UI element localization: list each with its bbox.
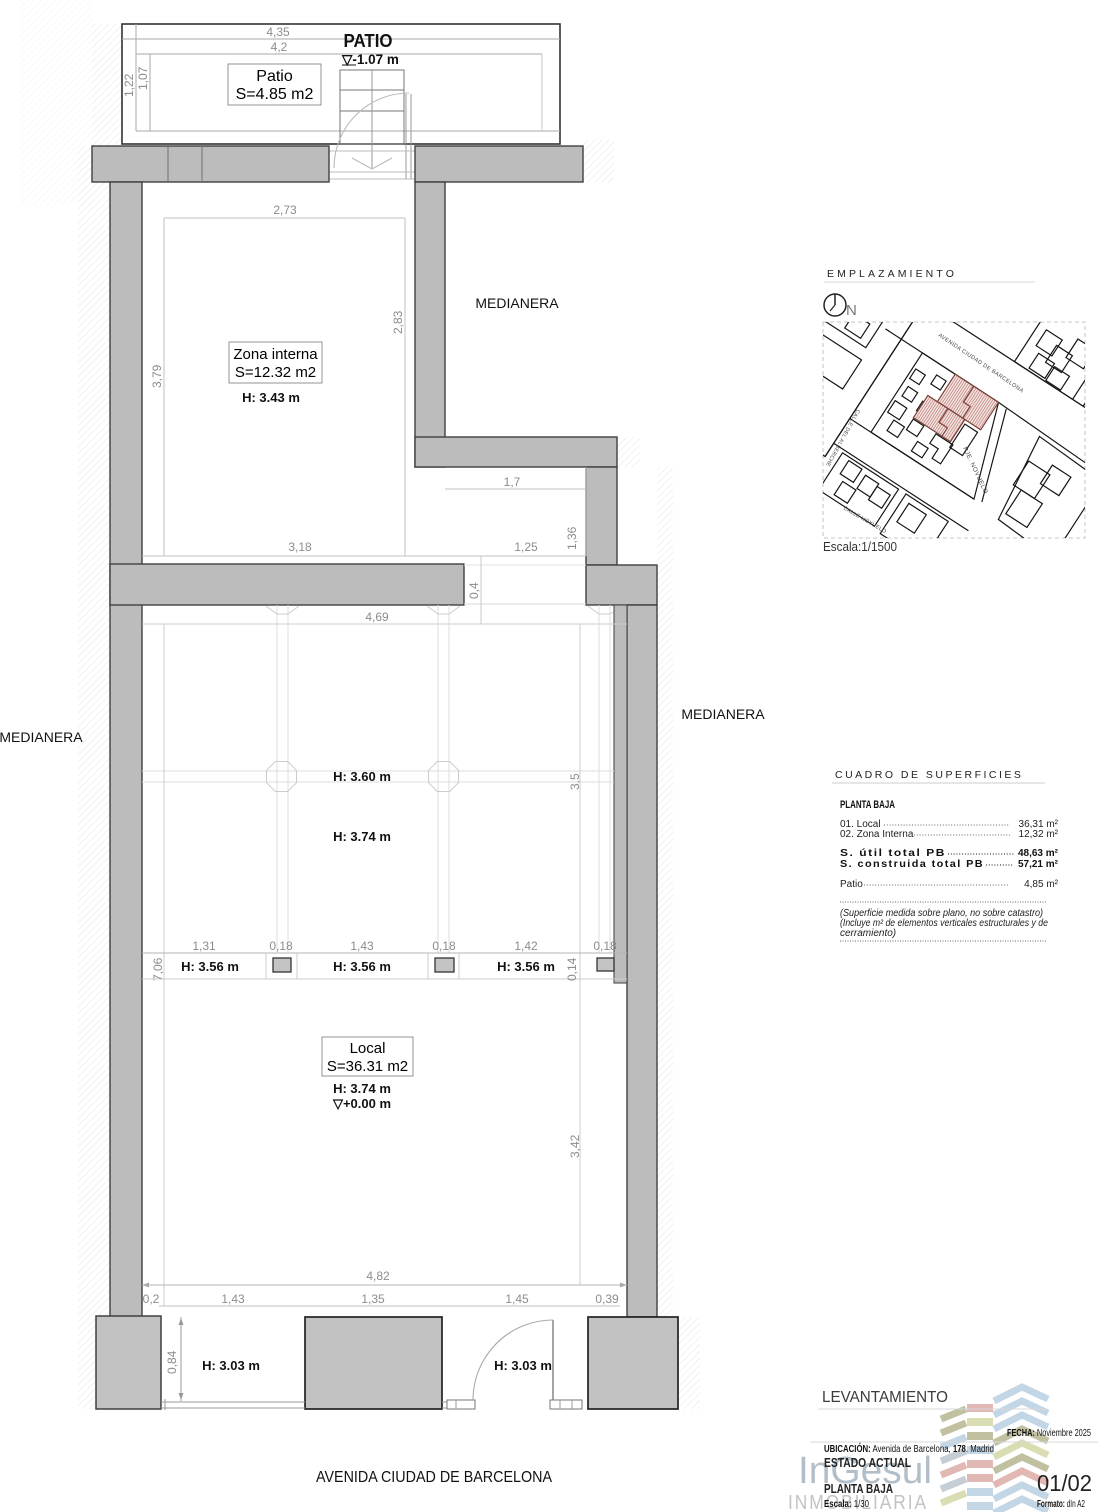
svg-text:1,31: 1,31 [192, 939, 216, 953]
svg-text:S. útil total PB: S. útil total PB [840, 848, 946, 859]
svg-text:▽+0.00 m: ▽+0.00 m [332, 1096, 391, 1111]
svg-text:0,39: 0,39 [595, 1292, 619, 1306]
svg-text:0,18: 0,18 [432, 939, 456, 953]
svg-text:Patio: Patio [840, 879, 863, 890]
svg-text:CUADRO DE SUPERFICIES: CUADRO DE SUPERFICIES [835, 769, 1023, 781]
svg-text:1,36: 1,36 [565, 526, 579, 550]
svg-text:H: 3.56 m: H: 3.56 m [181, 959, 239, 974]
svg-text:Local: Local [350, 1040, 386, 1057]
svg-text:Zona interna: Zona interna [233, 346, 318, 363]
svg-text:cerramiento): cerramiento) [840, 928, 896, 939]
svg-text:0,14: 0,14 [565, 957, 579, 981]
svg-text:PLANTA BAJA: PLANTA BAJA [824, 1482, 893, 1496]
svg-text:2,83: 2,83 [391, 310, 405, 334]
svg-text:1,22: 1,22 [122, 73, 136, 97]
svg-text:1,35: 1,35 [361, 1292, 385, 1306]
svg-text:02. Zona Interna: 02. Zona Interna [840, 829, 914, 840]
svg-text:Escala:1/1500: Escala:1/1500 [823, 539, 897, 554]
svg-text:48,63 m²: 48,63 m² [1018, 848, 1059, 859]
svg-text:1,42: 1,42 [514, 939, 538, 953]
svg-text:EMPLAZAMIENTO: EMPLAZAMIENTO [827, 268, 957, 280]
svg-text:0,84: 0,84 [165, 1350, 179, 1374]
svg-text:4,82: 4,82 [366, 1269, 390, 1283]
svg-text:S. construida total PB: S. construida total PB [840, 859, 984, 870]
svg-text:1,43: 1,43 [221, 1292, 245, 1306]
svg-text:S=36.31 m2: S=36.31 m2 [327, 1058, 408, 1075]
svg-text:ESTADO ACTUAL: ESTADO ACTUAL [824, 1456, 911, 1470]
svg-text:2,73: 2,73 [273, 203, 297, 217]
svg-text:MEDIANERA: MEDIANERA [681, 706, 765, 722]
svg-text:N: N [846, 302, 857, 319]
svg-text:H: 3.60 m: H: 3.60 m [333, 769, 391, 784]
svg-text:S=4.85 m2: S=4.85 m2 [236, 86, 314, 103]
svg-text:4,2: 4,2 [271, 40, 288, 54]
svg-text:AVENIDA CIUDAD DE BARCELONA: AVENIDA CIUDAD DE BARCELONA [316, 1469, 552, 1486]
svg-text:Escala: 1/30: Escala: 1/30 [824, 1498, 869, 1510]
svg-text:0,18: 0,18 [593, 939, 617, 953]
svg-text:0,4: 0,4 [467, 582, 481, 599]
svg-text:PLANTA BAJA: PLANTA BAJA [840, 799, 895, 811]
svg-text:0,18: 0,18 [269, 939, 293, 953]
svg-text:LEVANTAMIENTO: LEVANTAMIENTO [822, 1389, 948, 1406]
svg-text:Patio: Patio [256, 68, 293, 85]
svg-text:3,79: 3,79 [150, 364, 164, 388]
svg-text:MEDIANERA: MEDIANERA [475, 295, 559, 311]
svg-text:H: 3.74 m: H: 3.74 m [333, 829, 391, 844]
svg-text:MEDIANERA: MEDIANERA [0, 729, 83, 745]
svg-text:1,43: 1,43 [350, 939, 374, 953]
svg-text:H: 3.03 m: H: 3.03 m [494, 1358, 552, 1373]
svg-text:4,85 m²: 4,85 m² [1024, 879, 1059, 890]
svg-text:Formato: dIn A2: Formato: dIn A2 [1037, 1498, 1085, 1510]
svg-text:1,45: 1,45 [505, 1292, 529, 1306]
svg-text:01/02: 01/02 [1037, 1470, 1092, 1496]
svg-text:3,18: 3,18 [288, 540, 312, 554]
svg-text:1,25: 1,25 [514, 540, 538, 554]
svg-text:0,2: 0,2 [143, 1292, 160, 1306]
svg-text:4,69: 4,69 [365, 610, 389, 624]
svg-text:57,21 m²: 57,21 m² [1018, 859, 1059, 870]
svg-text:H: 3.03 m: H: 3.03 m [202, 1358, 260, 1373]
svg-text:H: 3.56 m: H: 3.56 m [333, 959, 391, 974]
svg-text:S=12.32 m2: S=12.32 m2 [235, 364, 316, 381]
svg-text:FECHA: Noviembre 2025: FECHA: Noviembre 2025 [1007, 1427, 1091, 1439]
svg-text:H: 3.56 m: H: 3.56 m [497, 959, 555, 974]
svg-text:PATIO: PATIO [344, 31, 393, 51]
svg-text:UBICACIÓN: Avenida de Barcelo: UBICACIÓN: Avenida de Barcelona, 178. Ma… [824, 1443, 994, 1455]
svg-text:1,07: 1,07 [136, 66, 150, 90]
svg-text:H: 3.43 m: H: 3.43 m [242, 390, 300, 405]
svg-text:7,06: 7,06 [151, 957, 165, 981]
svg-text:H: 3.74 m: H: 3.74 m [333, 1081, 391, 1096]
svg-text:3,42: 3,42 [568, 1134, 582, 1158]
svg-text:12,32 m²: 12,32 m² [1019, 829, 1059, 840]
svg-text:4,35: 4,35 [266, 25, 290, 39]
svg-text:1,7: 1,7 [504, 475, 521, 489]
